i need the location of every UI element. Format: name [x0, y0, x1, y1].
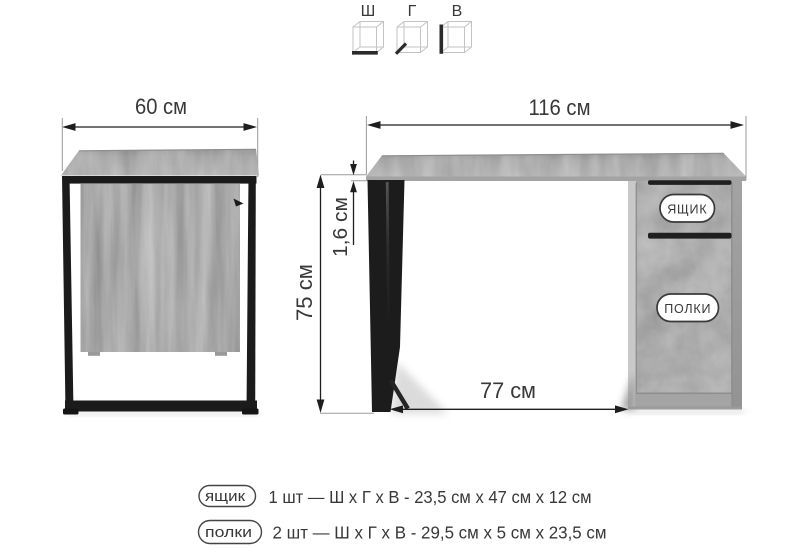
svg-text:полки: полки	[205, 525, 252, 541]
svg-text:116 см: 116 см	[529, 95, 591, 120]
svg-text:77 см: 77 см	[480, 378, 536, 403]
svg-text:ЯЩИК: ЯЩИК	[667, 203, 707, 217]
svg-text:60 см: 60 см	[135, 94, 187, 119]
svg-text:ящик: ящик	[205, 489, 246, 505]
svg-text:75 см: 75 см	[292, 264, 317, 321]
svg-text:1 шт — Ш х Г х В - 23,5 см х 4: 1 шт — Ш х Г х В - 23,5 см х 47 см х 12 …	[269, 487, 592, 507]
svg-text:В: В	[452, 3, 463, 20]
svg-text:ПОЛКИ: ПОЛКИ	[664, 302, 711, 316]
svg-text:Ш: Ш	[361, 3, 376, 20]
svg-text:2 шт — Ш х Г х В - 29,5 см х: 2 шт — Ш х Г х В - 29,5 см х 5 см х 23,5…	[273, 523, 607, 543]
svg-text:1,6 см: 1,6 см	[329, 197, 352, 257]
svg-text:Г: Г	[408, 3, 417, 20]
